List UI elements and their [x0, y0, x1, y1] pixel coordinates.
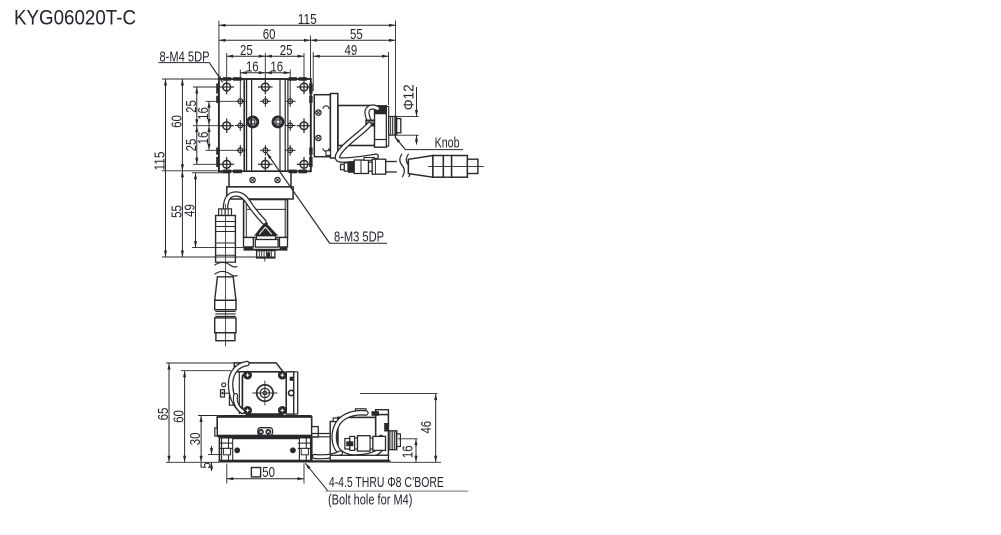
svg-text:16: 16 [195, 132, 212, 145]
svg-text:5: 5 [198, 462, 215, 468]
svg-text:49: 49 [182, 204, 199, 217]
svg-text:49: 49 [345, 42, 358, 59]
svg-text:50: 50 [262, 464, 275, 481]
svg-text:55: 55 [350, 26, 363, 43]
svg-text:16: 16 [246, 58, 259, 75]
svg-text:60: 60 [168, 115, 185, 128]
svg-text:46: 46 [418, 421, 435, 434]
svg-text:65: 65 [155, 408, 172, 421]
svg-text:(Bolt hole for M4): (Bolt hole for M4) [328, 493, 412, 509]
svg-text:115: 115 [298, 11, 317, 28]
svg-text:30: 30 [187, 433, 204, 446]
svg-text:16: 16 [270, 58, 283, 75]
svg-text:4-4.5 THRU Φ8 C’BORE: 4-4.5 THRU Φ8 C’BORE [329, 475, 444, 491]
svg-text:60: 60 [263, 26, 276, 43]
svg-text:KYG06020T-C: KYG06020T-C [14, 7, 136, 30]
svg-text:25: 25 [240, 42, 253, 59]
svg-text:115: 115 [152, 152, 169, 171]
svg-text:16: 16 [399, 445, 416, 458]
svg-text:Φ12: Φ12 [401, 84, 418, 110]
svg-text:25: 25 [280, 42, 293, 59]
svg-text:60: 60 [171, 410, 188, 423]
svg-text:Knob: Knob [435, 134, 460, 151]
svg-text:16: 16 [195, 107, 212, 120]
